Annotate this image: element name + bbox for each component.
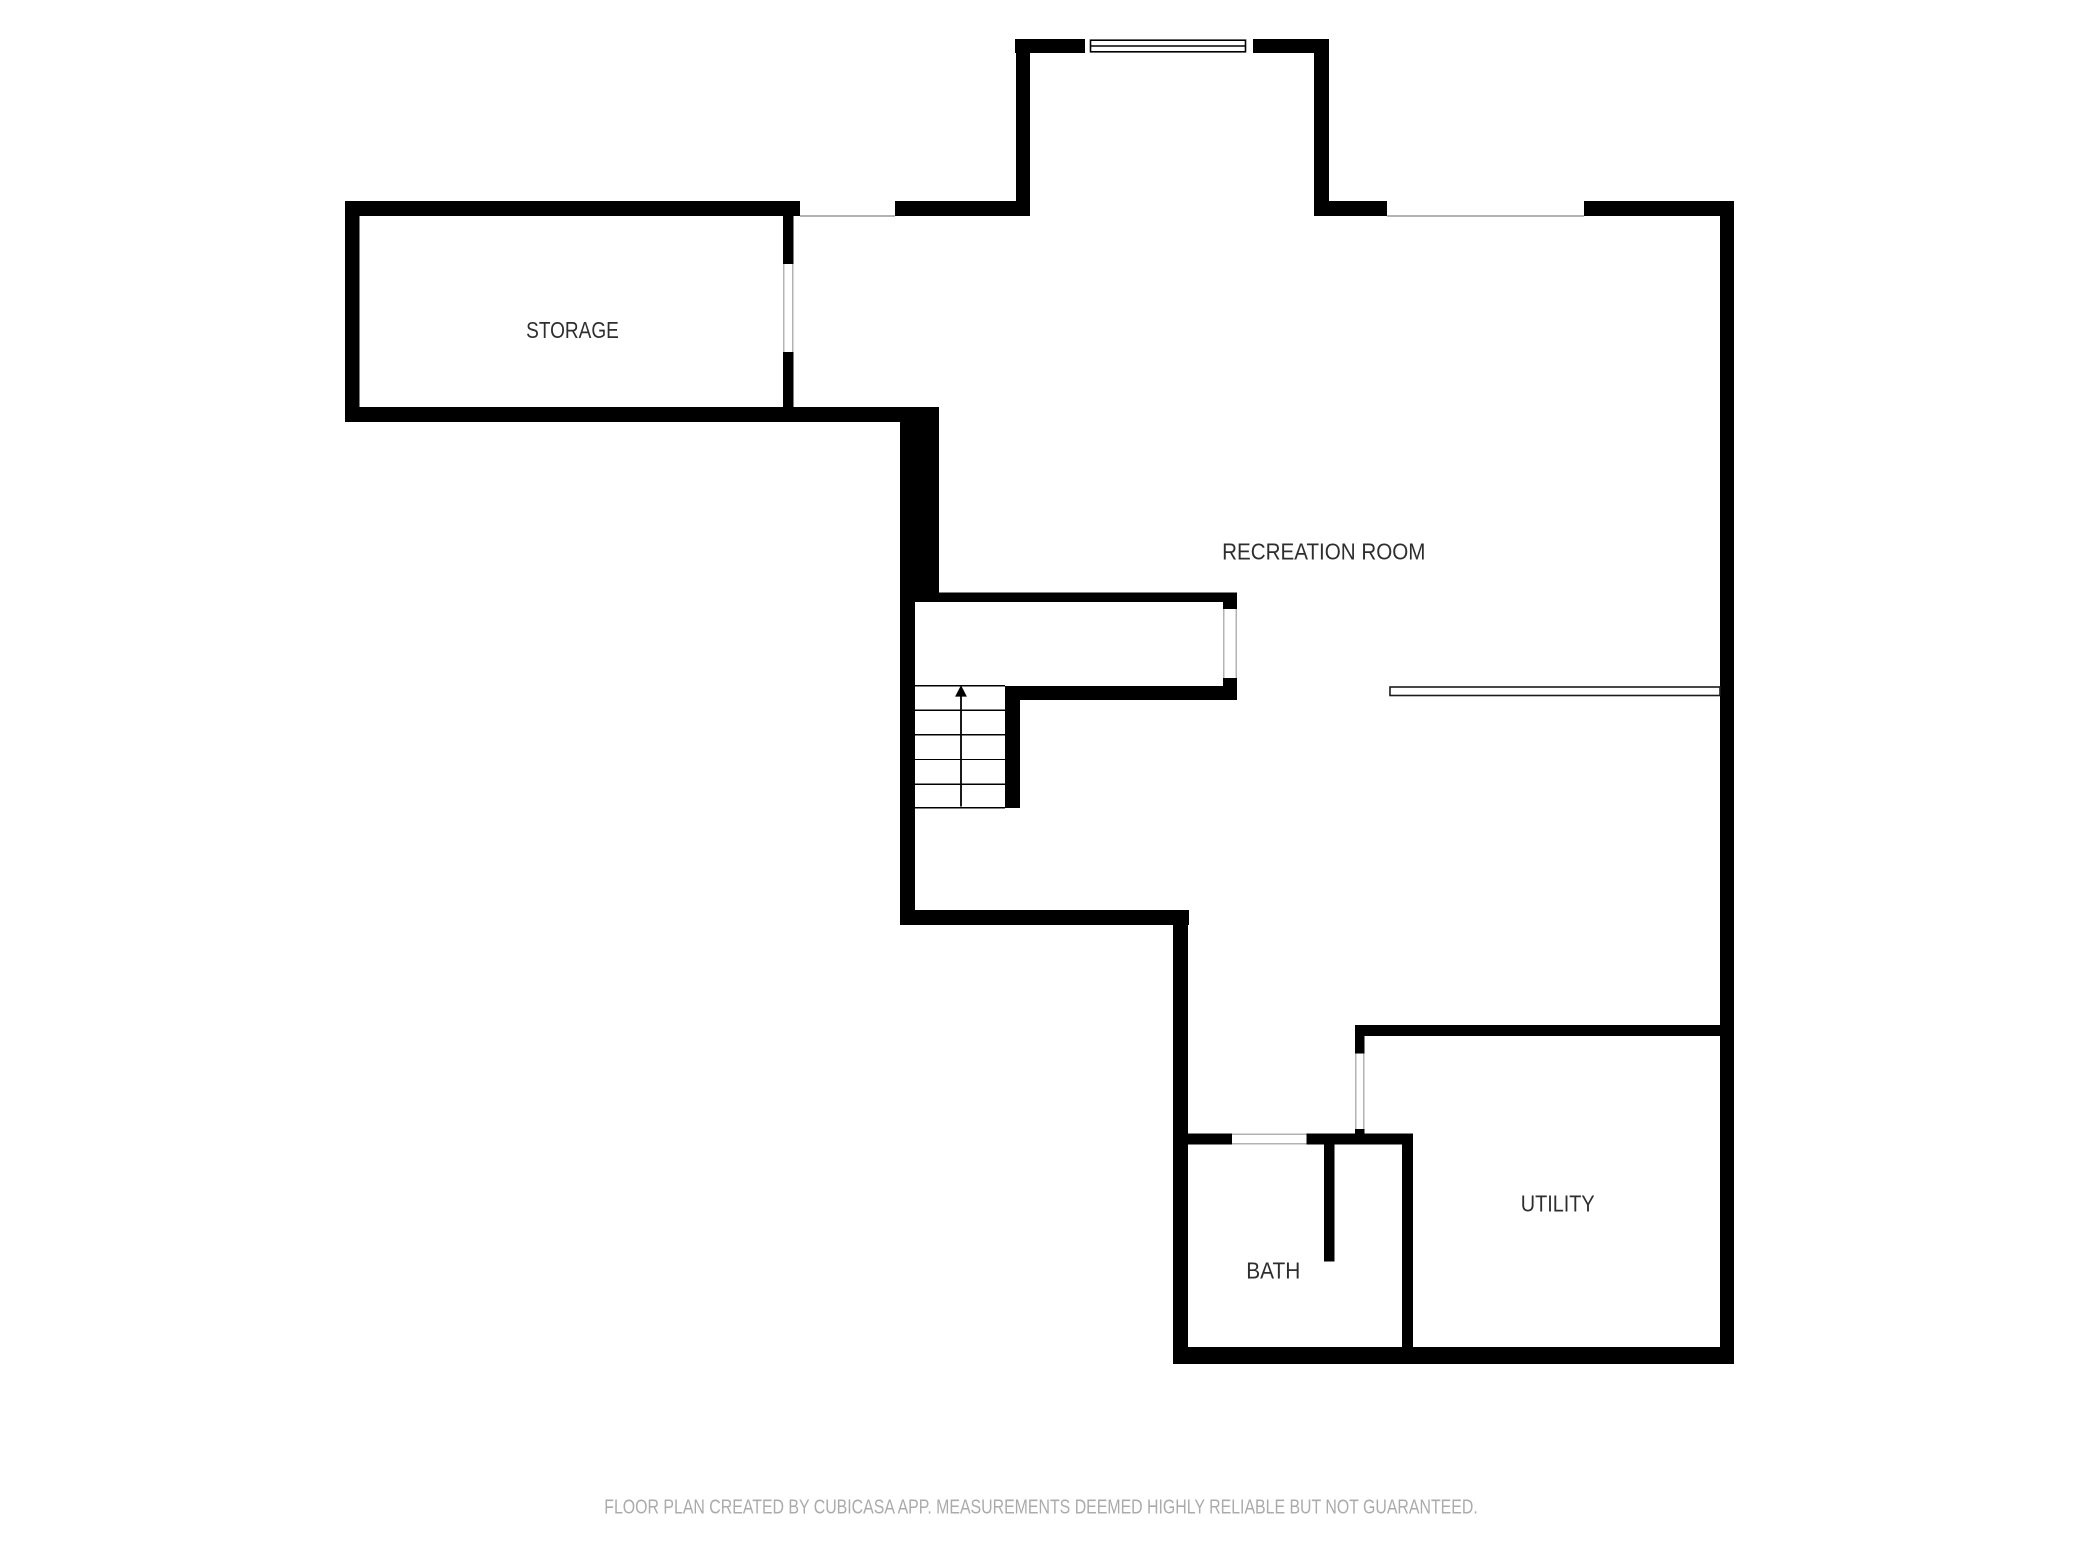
svg-text:UTILITY: UTILITY <box>1521 1190 1595 1217</box>
svg-text:RECREATION ROOM: RECREATION ROOM <box>1222 538 1425 565</box>
svg-text:STORAGE: STORAGE <box>526 317 619 343</box>
svg-text:BATH: BATH <box>1246 1257 1300 1283</box>
svg-text:FLOOR PLAN CREATED BY CUBICASA: FLOOR PLAN CREATED BY CUBICASA APP. MEAS… <box>604 1496 1477 1518</box>
